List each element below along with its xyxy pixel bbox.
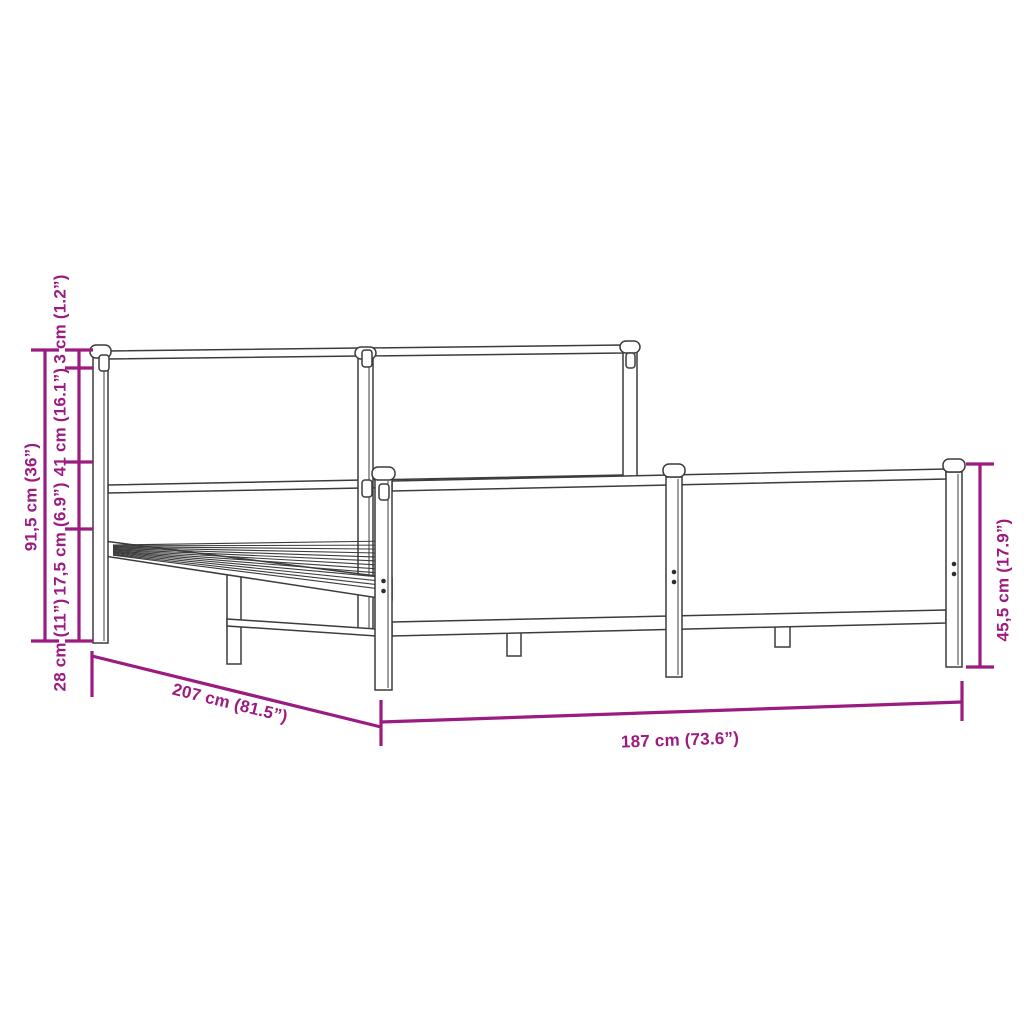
screw	[672, 570, 677, 575]
base-support-leg	[227, 563, 241, 664]
screw	[381, 579, 386, 584]
footboard-near-post	[372, 467, 395, 690]
dim-label-total-height: 91,5 cm (36”)	[22, 443, 41, 551]
dim-height-segments: 3 cm (1.2”) 41 cm (16.1”) 17,5 cm (6.9”)…	[51, 274, 94, 691]
footboard-middle-post	[663, 464, 685, 677]
dim-footboard-height: 45,5 cm (17.9”)	[966, 464, 1013, 667]
screw	[952, 562, 957, 567]
screw	[381, 589, 386, 594]
post-cap	[372, 467, 395, 480]
post-cap	[620, 341, 640, 353]
dim-label-width: 187 cm (73.6”)	[621, 728, 740, 751]
footboard-right-post	[943, 459, 965, 667]
screw	[672, 580, 677, 585]
dim-label-footboard-height: 45,5 cm (17.9”)	[994, 518, 1013, 641]
post-cap	[663, 464, 685, 477]
headboard-near-post	[90, 345, 111, 643]
bed-frame-diagram: 91,5 cm (36”) 3 cm (1.2”) 41 cm (16.1”) …	[0, 0, 1024, 1024]
dim-width: 187 cm (73.6”)	[381, 681, 962, 752]
product-dimension-image: 91,5 cm (36”) 3 cm (1.2”) 41 cm (16.1”) …	[0, 0, 1024, 1024]
bracket	[99, 355, 109, 371]
bracket	[362, 480, 372, 497]
screw	[952, 572, 957, 577]
footboard-foot-stub	[507, 632, 521, 656]
bracket	[626, 353, 635, 368]
dim-label-mid-section: 17,5 cm (6.9”)	[51, 482, 70, 595]
dim-label-headboard-panel: 41 cm (16.1”)	[51, 368, 70, 476]
bracket	[379, 484, 389, 500]
dim-label-length: 207 cm (81.5”)	[170, 680, 289, 727]
headboard-far-post	[620, 341, 640, 477]
footboard-foot-stub	[775, 626, 790, 647]
dim-label-top-section: 3 cm (1.2”)	[51, 274, 70, 363]
bracket	[362, 350, 372, 367]
bed-frame-drawing	[90, 341, 965, 690]
dim-label-base-section: 28 cm (11”)	[51, 599, 70, 692]
post-cap	[943, 459, 965, 472]
